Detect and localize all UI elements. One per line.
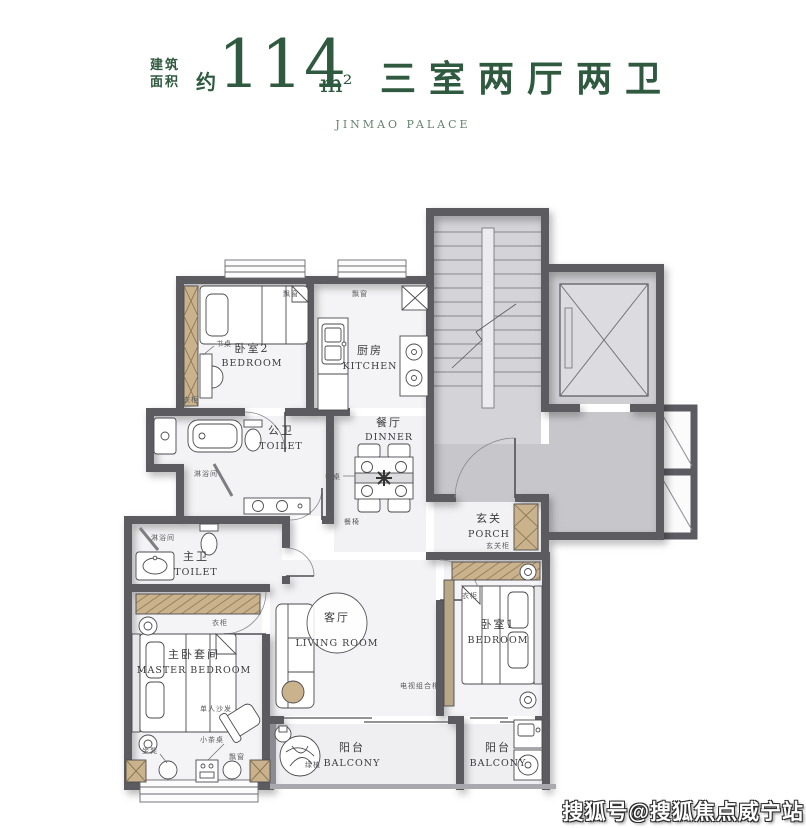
side-table-living <box>282 681 304 703</box>
label-dinner-en: DINNER <box>365 432 413 443</box>
tv-cabinet-strip <box>444 580 454 706</box>
kitchen-stove <box>400 336 428 396</box>
ann-bay-master: 飘窗 <box>229 752 245 761</box>
label-kitchen-en: KITCHEN <box>343 361 398 372</box>
ann-dining-chair: 餐椅 <box>344 517 360 526</box>
label-porch-en: PORCH <box>468 529 510 540</box>
label-living-cn: 客厅 <box>324 610 350 624</box>
label-bedroom2-en: BEDROOM <box>222 358 283 369</box>
ann-tea-table: 小茶桌 <box>200 735 224 744</box>
label-balcony-left-cn: 阳台 <box>339 740 365 754</box>
ann-shower-master: 淋浴间 <box>151 533 175 542</box>
label-public-toilet-cn: 公卫 <box>268 424 294 437</box>
sink-master <box>136 552 174 580</box>
pipe-shaft <box>660 408 694 536</box>
ann-stool: 坐凳 <box>142 746 158 755</box>
project-subtitle: JINMAO PALACE <box>0 118 806 131</box>
label-public-toilet-en: TOILET <box>259 441 302 452</box>
kitchen-appliance <box>402 286 428 310</box>
label-living-en: LIVING ROOM <box>295 638 378 649</box>
label-master-bedroom-en: MASTER BEDROOM <box>137 665 252 676</box>
ann-bay-kitchen: 飘窗 <box>352 289 368 298</box>
label-master-toilet-cn: 主卫 <box>183 550 209 563</box>
layout-title: 三室两厅两卫 <box>380 50 674 102</box>
elevator <box>560 284 648 396</box>
area-unit: m² <box>320 70 352 98</box>
balcony-railing <box>270 784 556 789</box>
laundry-sink-niche <box>154 418 176 454</box>
vanity-public <box>244 498 310 514</box>
floor-plan: 卧室2 BEDROOM 厨房 KITCHEN 公卫 TOILET 餐厅 DINN… <box>0 168 806 828</box>
label-balcony-left-en: BALCONY <box>324 758 381 769</box>
ann-porch-cabinet: 玄关柜 <box>486 541 510 550</box>
label-master-bedroom-cn: 主卧套间 <box>168 648 220 661</box>
ann-shower-public: 淋浴间 <box>194 469 218 478</box>
area-label-line1: 建筑 <box>150 58 180 75</box>
watermark: 搜狐号@搜狐焦点威宁站 <box>563 796 804 826</box>
area-label: 建筑 面积 <box>150 58 180 92</box>
label-bedroom1-en: BEDROOM <box>468 635 529 646</box>
label-master-toilet-en: TOILET <box>174 567 217 578</box>
wardrobe-master-strip <box>136 594 260 614</box>
ann-single-sofa: 单人沙发 <box>200 704 232 713</box>
ann-wardrobe-br2: 衣柜 <box>183 395 199 404</box>
approx-label: 约 <box>196 66 216 95</box>
porch-cabinet-box <box>514 504 538 550</box>
label-dinner-cn: 餐厅 <box>376 415 402 429</box>
ann-desk: 书桌 <box>216 339 232 348</box>
label-balcony-right-cn: 阳台 <box>485 740 511 754</box>
area-label-line2: 面积 <box>150 75 180 92</box>
label-balcony-right-en: BALCONY <box>470 758 527 769</box>
bathtub-public <box>188 420 242 452</box>
floorplan-page: 建筑 面积 约 114 m² 三室两厅两卫 JINMAO PALACE <box>0 0 806 828</box>
label-kitchen-cn: 厨房 <box>357 344 383 357</box>
ann-tv-cabinet: 电视组合柜 <box>400 681 440 690</box>
label-bedroom2-cn: 卧室2 <box>235 341 270 355</box>
ann-dining-table: 餐桌 <box>325 472 341 481</box>
ann-wardrobe-master: 衣柜 <box>212 618 228 627</box>
wardrobe-br2-box <box>184 286 198 406</box>
ann-bay-br2: 飘窗 <box>283 289 299 298</box>
label-bedroom1-cn: 卧室1 <box>481 617 516 631</box>
label-porch-cn: 玄关 <box>476 511 502 525</box>
washer-balcony <box>514 720 542 780</box>
ann-plant: 绿植 <box>305 760 321 769</box>
ann-wardrobe-br1: 衣柜 <box>462 591 478 600</box>
